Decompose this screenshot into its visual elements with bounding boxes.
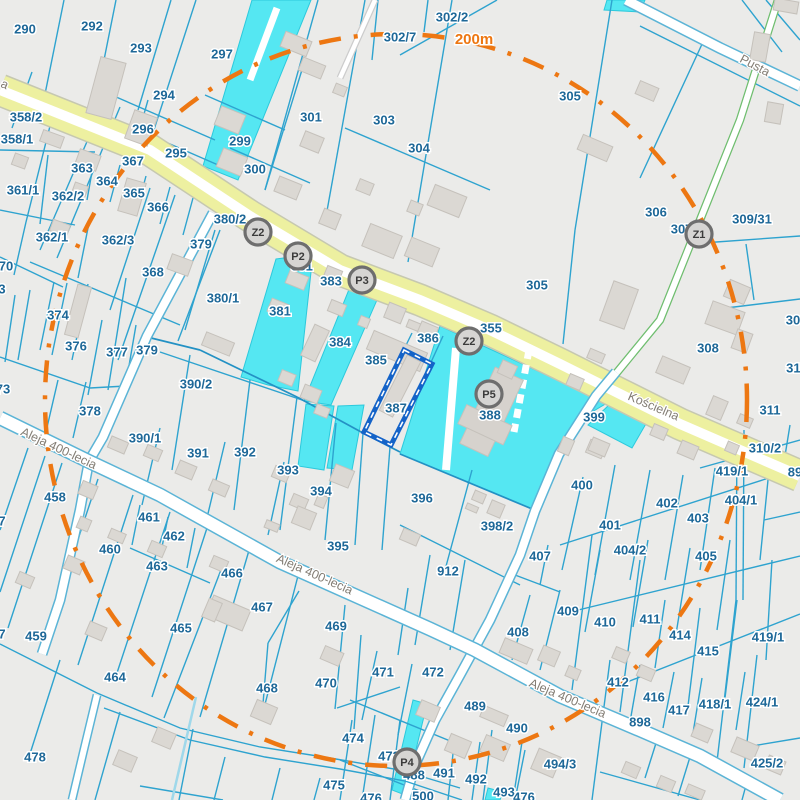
svg-text:73: 73 bbox=[0, 382, 10, 397]
svg-text:493: 493 bbox=[493, 785, 515, 800]
svg-text:459: 459 bbox=[25, 629, 47, 644]
svg-text:361/1: 361/1 bbox=[7, 183, 40, 198]
svg-text:461: 461 bbox=[138, 510, 160, 525]
svg-text:366: 366 bbox=[147, 200, 169, 215]
svg-text:467: 467 bbox=[251, 600, 273, 615]
svg-text:362/1: 362/1 bbox=[36, 230, 69, 245]
svg-text:474: 474 bbox=[342, 731, 364, 746]
svg-text:407: 407 bbox=[529, 549, 551, 564]
svg-text:70: 70 bbox=[0, 259, 13, 274]
svg-text:463: 463 bbox=[146, 559, 168, 574]
svg-text:388: 388 bbox=[479, 408, 501, 423]
svg-text:500: 500 bbox=[412, 789, 434, 801]
svg-text:478: 478 bbox=[24, 750, 46, 765]
svg-text:P3: P3 bbox=[355, 275, 368, 287]
svg-text:362/3: 362/3 bbox=[102, 233, 135, 248]
svg-text:297: 297 bbox=[211, 47, 233, 62]
svg-text:465: 465 bbox=[170, 621, 192, 636]
svg-text:912: 912 bbox=[437, 564, 459, 579]
svg-text:409: 409 bbox=[557, 604, 579, 619]
svg-text:392: 392 bbox=[234, 445, 256, 460]
svg-text:472: 472 bbox=[422, 665, 444, 680]
svg-text:399: 399 bbox=[583, 410, 605, 425]
svg-text:386: 386 bbox=[417, 331, 439, 346]
svg-text:405: 405 bbox=[695, 549, 717, 564]
svg-text:367: 367 bbox=[122, 154, 144, 169]
svg-text:404/1: 404/1 bbox=[725, 493, 758, 508]
svg-text:458: 458 bbox=[44, 490, 66, 505]
svg-text:390/1: 390/1 bbox=[129, 431, 162, 446]
svg-text:402: 402 bbox=[656, 496, 678, 511]
svg-text:305: 305 bbox=[559, 89, 581, 104]
svg-text:414: 414 bbox=[669, 628, 691, 643]
svg-text:398/2: 398/2 bbox=[481, 519, 514, 534]
svg-text:381: 381 bbox=[269, 304, 291, 319]
svg-text:296: 296 bbox=[132, 122, 154, 137]
svg-text:295: 295 bbox=[165, 146, 187, 161]
svg-text:384: 384 bbox=[329, 335, 351, 350]
svg-text:417: 417 bbox=[668, 703, 690, 718]
svg-text:358/1: 358/1 bbox=[1, 132, 34, 147]
svg-text:362/2: 362/2 bbox=[52, 189, 85, 204]
svg-text:415: 415 bbox=[697, 644, 719, 659]
svg-text:464: 464 bbox=[104, 670, 126, 685]
svg-text:P4: P4 bbox=[400, 757, 414, 769]
svg-text:390/2: 390/2 bbox=[180, 377, 213, 392]
svg-text:Z1: Z1 bbox=[693, 229, 706, 241]
svg-text:393: 393 bbox=[277, 463, 299, 478]
svg-text:P5: P5 bbox=[482, 389, 495, 401]
svg-text:898: 898 bbox=[629, 715, 651, 730]
svg-text:403: 403 bbox=[687, 511, 709, 526]
svg-text:368: 368 bbox=[142, 265, 164, 280]
svg-text:305: 305 bbox=[526, 278, 548, 293]
svg-text:410: 410 bbox=[594, 615, 616, 630]
svg-text:7: 7 bbox=[0, 514, 6, 529]
svg-text:470: 470 bbox=[315, 676, 337, 691]
svg-text:471: 471 bbox=[372, 665, 394, 680]
svg-text:293: 293 bbox=[130, 41, 152, 56]
svg-text:311: 311 bbox=[760, 403, 781, 418]
svg-text:Z2: Z2 bbox=[463, 336, 476, 348]
svg-text:400: 400 bbox=[571, 478, 593, 493]
svg-text:424/1: 424/1 bbox=[746, 695, 779, 710]
svg-text:365: 365 bbox=[123, 186, 145, 201]
svg-text:489: 489 bbox=[464, 699, 486, 714]
svg-text:387: 387 bbox=[385, 401, 407, 416]
svg-text:475: 475 bbox=[323, 778, 345, 793]
svg-text:395: 395 bbox=[327, 539, 349, 554]
svg-text:358/2: 358/2 bbox=[10, 110, 43, 125]
svg-text:419/1: 419/1 bbox=[752, 630, 785, 645]
svg-text:377: 377 bbox=[106, 345, 128, 360]
svg-text:494/3: 494/3 bbox=[544, 757, 577, 772]
svg-text:466: 466 bbox=[221, 566, 243, 581]
svg-text:376: 376 bbox=[65, 339, 87, 354]
svg-text:379: 379 bbox=[136, 343, 158, 358]
svg-text:412: 412 bbox=[607, 675, 629, 690]
svg-text:7: 7 bbox=[0, 627, 6, 642]
svg-text:89: 89 bbox=[788, 465, 800, 480]
svg-text:299: 299 bbox=[229, 134, 251, 149]
svg-text:301: 301 bbox=[300, 110, 322, 125]
svg-text:364: 364 bbox=[96, 174, 118, 189]
svg-text:419/1: 419/1 bbox=[716, 464, 749, 479]
svg-text:308: 308 bbox=[697, 341, 719, 356]
svg-text:476: 476 bbox=[513, 790, 535, 801]
svg-text:391: 391 bbox=[187, 446, 209, 461]
svg-text:302/7: 302/7 bbox=[384, 30, 417, 45]
svg-text:304: 304 bbox=[408, 141, 430, 156]
svg-text:396: 396 bbox=[411, 491, 433, 506]
svg-text:416: 416 bbox=[643, 690, 665, 705]
svg-text:408: 408 bbox=[507, 625, 529, 640]
svg-text:310/2: 310/2 bbox=[749, 441, 782, 456]
svg-text:418/1: 418/1 bbox=[699, 697, 732, 712]
svg-text:294: 294 bbox=[153, 88, 175, 103]
svg-text:425/2: 425/2 bbox=[751, 756, 784, 771]
svg-text:460: 460 bbox=[99, 542, 121, 557]
svg-text:491: 491 bbox=[433, 766, 455, 781]
svg-text:Z2: Z2 bbox=[252, 227, 265, 239]
svg-text:P2: P2 bbox=[291, 251, 304, 263]
svg-text:379: 379 bbox=[190, 237, 212, 252]
svg-text:404/2: 404/2 bbox=[614, 543, 647, 558]
svg-text:300: 300 bbox=[244, 162, 266, 177]
svg-text:310: 310 bbox=[786, 361, 800, 376]
svg-text:303: 303 bbox=[373, 113, 395, 128]
svg-text:380/1: 380/1 bbox=[207, 291, 240, 306]
svg-text:302/2: 302/2 bbox=[436, 10, 469, 25]
svg-text:309/31: 309/31 bbox=[732, 212, 772, 227]
svg-text:374: 374 bbox=[47, 308, 69, 323]
svg-text:290: 290 bbox=[14, 22, 36, 37]
svg-text:355: 355 bbox=[480, 321, 502, 336]
svg-text:492: 492 bbox=[465, 772, 487, 787]
svg-text:401: 401 bbox=[599, 518, 621, 533]
svg-text:411: 411 bbox=[640, 612, 661, 627]
svg-text:306: 306 bbox=[645, 205, 667, 220]
svg-text:490: 490 bbox=[506, 721, 528, 736]
svg-text:380/2: 380/2 bbox=[214, 212, 247, 227]
svg-text:378: 378 bbox=[79, 404, 101, 419]
svg-text:363: 363 bbox=[71, 161, 93, 176]
svg-text:385: 385 bbox=[365, 353, 387, 368]
svg-text:383: 383 bbox=[320, 274, 342, 289]
svg-text:3: 3 bbox=[0, 282, 6, 297]
svg-text:200m: 200m bbox=[455, 31, 493, 48]
svg-text:30: 30 bbox=[786, 313, 800, 328]
svg-text:462: 462 bbox=[163, 529, 185, 544]
svg-text:476: 476 bbox=[360, 791, 382, 801]
svg-text:469: 469 bbox=[325, 619, 347, 634]
svg-text:292: 292 bbox=[81, 19, 103, 34]
svg-text:394: 394 bbox=[310, 484, 332, 499]
svg-text:468: 468 bbox=[256, 681, 278, 696]
